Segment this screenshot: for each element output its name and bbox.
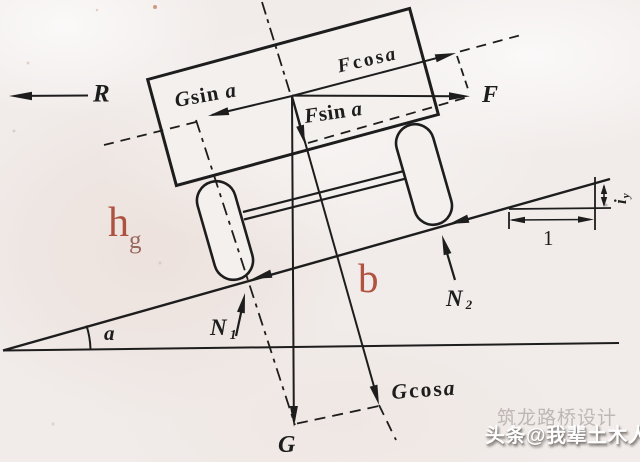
svg-text:G: G [278, 432, 296, 458]
svg-text:F: F [481, 82, 498, 108]
svg-text:Gcosa: Gcosa [391, 376, 457, 404]
svg-text:R: R [92, 81, 110, 108]
svg-text:a: a [104, 321, 115, 345]
svg-text:1: 1 [543, 226, 554, 250]
svg-text:b: b [358, 255, 379, 301]
